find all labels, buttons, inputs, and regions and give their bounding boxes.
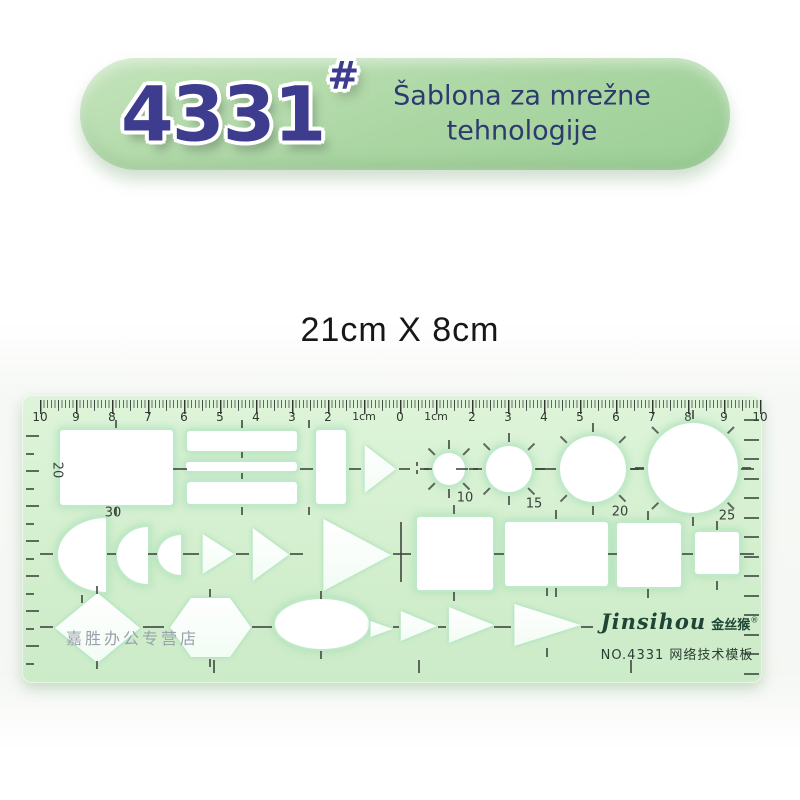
bar-bottom-cutout [187, 482, 297, 504]
ruler-label-1: 9 [72, 410, 80, 424]
h-registration-mark [393, 553, 411, 555]
ellipse-cutout [275, 599, 369, 649]
right-ruler-tick [744, 419, 759, 421]
h-registration-mark [535, 468, 547, 470]
circle-15mm-radial-tick [483, 443, 491, 451]
right-ruler-tick [744, 634, 759, 636]
h-registration-mark [300, 468, 313, 470]
h-registration-mark [173, 468, 187, 470]
v-registration-mark [241, 507, 243, 515]
stencil-label-15-3: 15 [526, 497, 543, 512]
v-registration-mark [416, 462, 418, 466]
v-registration-mark [546, 588, 548, 596]
circle-20mm-cutout [560, 436, 626, 502]
left-ruler-tick [26, 628, 34, 630]
ruler-label-16: 6 [612, 410, 620, 424]
h-registration-mark [349, 468, 361, 470]
right-ruler-tick [744, 614, 759, 616]
v-registration-mark [209, 589, 211, 597]
product-title-line2: tehnologije [352, 114, 692, 149]
h-registration-mark [393, 626, 399, 628]
h-registration-mark [290, 553, 303, 555]
h-registration-mark [424, 468, 432, 470]
v-registration-mark [241, 473, 243, 479]
v-registration-mark [96, 661, 98, 669]
circle-10mm-radial-tick [462, 482, 470, 490]
stencil-label-20-0: 20 [50, 462, 65, 479]
v-registration-mark [647, 589, 649, 598]
stencil-label-25-5: 25 [719, 509, 736, 524]
h-registration-mark [682, 553, 693, 555]
ruler-label-5: 5 [216, 410, 224, 424]
stencil-label-30-1: 30 [105, 506, 122, 521]
triangle-b3-fill [448, 607, 494, 643]
v-registration-mark [416, 470, 418, 474]
v-registration-mark [716, 521, 718, 530]
h-registration-mark [631, 468, 644, 470]
circle-10mm-radial-tick [448, 489, 450, 498]
circle-20mm-radial-tick [592, 506, 594, 515]
ruler-label-8: 2 [324, 410, 332, 424]
v-registration-mark [81, 595, 83, 603]
circle-10mm-radial-tick [462, 448, 470, 456]
circle-15mm-cutout [486, 446, 532, 492]
circle-20mm-radial-tick [560, 436, 568, 444]
right-ruler-tick [744, 575, 759, 577]
h-registration-mark [148, 553, 157, 555]
triangle-b2-fill [400, 611, 437, 641]
triangle-large-fill [322, 519, 391, 591]
left-ruler-tick [26, 575, 39, 577]
ruler-label-0: 10 [32, 410, 47, 424]
h-registration-mark [40, 553, 53, 555]
left-ruler-tick [26, 663, 34, 665]
right-ruler-tick [744, 653, 759, 655]
left-ruler-tick [26, 645, 39, 647]
v-registration-mark [546, 648, 548, 657]
triangle-small-cutout [202, 534, 234, 574]
v-registration-mark [400, 522, 402, 582]
circle-15mm-radial-tick [508, 433, 510, 442]
bar-top-cutout [187, 431, 297, 451]
left-ruler-tick [26, 505, 39, 507]
left-ruler-tick [26, 523, 34, 525]
v-registration-mark [320, 651, 322, 659]
triangle-b1-cutout [370, 621, 393, 637]
left-ruler-tick [26, 610, 39, 612]
left-ruler-tick [26, 540, 39, 542]
h-registration-mark [399, 468, 410, 470]
semicircle-medium-cutout [117, 527, 148, 584]
right-ruler-tick [744, 536, 759, 538]
right-ruler-tick [744, 458, 759, 460]
right-ruler-tick [744, 595, 759, 597]
stencil-label-10-2: 10 [457, 491, 474, 506]
h-registration-mark [494, 553, 504, 555]
triangle-b1-fill [370, 621, 393, 637]
v-registration-mark [241, 452, 243, 458]
v-registration-mark [96, 586, 98, 594]
v-registration-mark [453, 505, 455, 514]
ruler-label-7: 3 [288, 410, 296, 424]
circle-25mm-radial-tick [651, 426, 659, 434]
ruler-label-10: 0 [396, 410, 404, 424]
circle-25mm-cutout [648, 423, 738, 513]
triangle-row1-cutout [364, 445, 396, 493]
h-registration-mark [107, 553, 116, 555]
product-image: 4331# Šablona za mrežne tehnologije 21cm… [0, 0, 800, 800]
circle-20mm-radial-tick [547, 468, 556, 470]
triangle-medium-cutout [252, 528, 289, 581]
circle-15mm-radial-tick [508, 496, 510, 505]
h-registration-mark [183, 553, 199, 555]
v-registration-mark [555, 510, 557, 519]
left-ruler-tick [26, 558, 34, 560]
triangle-large-cutout [322, 519, 391, 591]
triangle-b3-cutout [448, 607, 494, 643]
triangle-b4-fill [513, 604, 581, 646]
square-large-cutout [417, 517, 493, 590]
ruler-label-14: 4 [540, 410, 548, 424]
left-ruler-tick [26, 593, 34, 595]
product-title: Šablona za mrežne tehnologije [352, 79, 692, 148]
v-registration-mark [418, 660, 420, 673]
circle-25mm-radial-tick [692, 517, 694, 526]
left-ruler-tick [26, 435, 39, 437]
circle-25mm-radial-tick [727, 426, 735, 434]
h-registration-mark [456, 468, 468, 470]
ruler-label-6: 4 [252, 410, 260, 424]
v-registration-mark [308, 420, 310, 428]
ruler-label-12: 2 [468, 410, 476, 424]
ruler-label-4: 6 [180, 410, 188, 424]
h-registration-mark [236, 553, 249, 555]
triangle-small-fill [202, 534, 234, 574]
right-ruler-tick [744, 556, 759, 558]
circle-25mm-radial-tick [651, 502, 659, 510]
h-registration-mark [608, 553, 617, 555]
triangle-b2-cutout [400, 611, 437, 641]
square-medium-cutout [617, 523, 681, 587]
v-registration-mark [320, 591, 322, 599]
stencil-template: 10987654321cm01cm2345678910 203010152025… [22, 395, 762, 683]
brand-chinese-text: 金丝猴 [711, 618, 750, 633]
square-small-cutout [695, 532, 739, 574]
circle-10mm-radial-tick [428, 482, 436, 490]
model-number-text: 4331 [121, 70, 325, 159]
right-ruler-tick [744, 517, 759, 519]
v-registration-mark [647, 511, 649, 520]
h-registration-mark [741, 468, 754, 470]
v-registration-mark [209, 659, 211, 667]
v-registration-mark [716, 581, 718, 590]
ruler-label-3: 7 [144, 410, 152, 424]
right-ruler-tick [744, 497, 759, 499]
v-registration-mark [241, 420, 243, 428]
bar-middle-cutout [186, 462, 297, 471]
product-badge: 4331# Šablona za mrežne tehnologije [80, 58, 730, 170]
semicircle-large-cutout [58, 518, 106, 592]
h-registration-mark [494, 626, 511, 628]
dimensions-caption: 21cm X 8cm [0, 311, 800, 350]
ruler-label-19: 9 [720, 410, 728, 424]
v-registration-mark [555, 588, 557, 597]
left-ruler-tick [26, 488, 34, 490]
circle-25mm-radial-tick [692, 410, 694, 419]
circle-15mm-radial-tick [527, 443, 535, 451]
circle-20mm-radial-tick [592, 423, 594, 432]
triangle-medium-fill [252, 528, 289, 581]
brand-latin-text: Jinsihou [601, 609, 707, 634]
circle-10mm-radial-tick [428, 448, 436, 456]
ruler-label-18: 8 [684, 410, 692, 424]
v-registration-mark [453, 592, 455, 601]
rect-wide-cutout [505, 522, 608, 586]
circle-15mm-radial-tick [483, 487, 491, 495]
circle-10mm-radial-tick [448, 440, 450, 449]
rect-vertical-cutout [316, 430, 346, 504]
ruler-label-11: 1cm [424, 410, 448, 423]
stencil-label-20-4: 20 [612, 505, 629, 520]
semicircle-small-cutout [158, 535, 181, 575]
product-title-line1: Šablona za mrežne [352, 79, 692, 114]
right-ruler-tick [744, 478, 759, 480]
triangle-row1-fill [364, 445, 396, 493]
ruler-label-9: 1cm [352, 410, 376, 423]
rect-large-cutout [60, 430, 173, 505]
right-ruler-tick [744, 439, 759, 441]
ruler-label-15: 5 [576, 410, 584, 424]
h-registration-mark [252, 626, 272, 628]
left-ruler-tick [26, 470, 39, 472]
h-registration-mark [40, 626, 53, 628]
circle-20mm-radial-tick [560, 494, 568, 502]
model-number: 4331# [90, 70, 390, 159]
brand-logo: Jinsihou 金丝猴® [587, 609, 772, 634]
v-registration-mark [115, 420, 117, 428]
right-ruler-tick [744, 673, 759, 675]
seller-watermark: 嘉胜办公专营店 [66, 625, 199, 649]
ruler-label-13: 3 [504, 410, 512, 424]
circle-15mm-radial-tick [527, 487, 535, 495]
ruler-label-20: 10 [752, 410, 767, 424]
circle-20mm-radial-tick [618, 494, 626, 502]
circle-20mm-radial-tick [618, 436, 626, 444]
left-ruler-tick [26, 453, 34, 455]
h-registration-mark [438, 626, 446, 628]
v-registration-mark [308, 507, 310, 515]
ruler-label-17: 7 [648, 410, 656, 424]
v-registration-mark [213, 660, 215, 673]
circle-15mm-radial-tick [473, 468, 482, 470]
triangle-b4-cutout [513, 604, 581, 646]
registered-trademark-icon: ® [750, 616, 758, 625]
